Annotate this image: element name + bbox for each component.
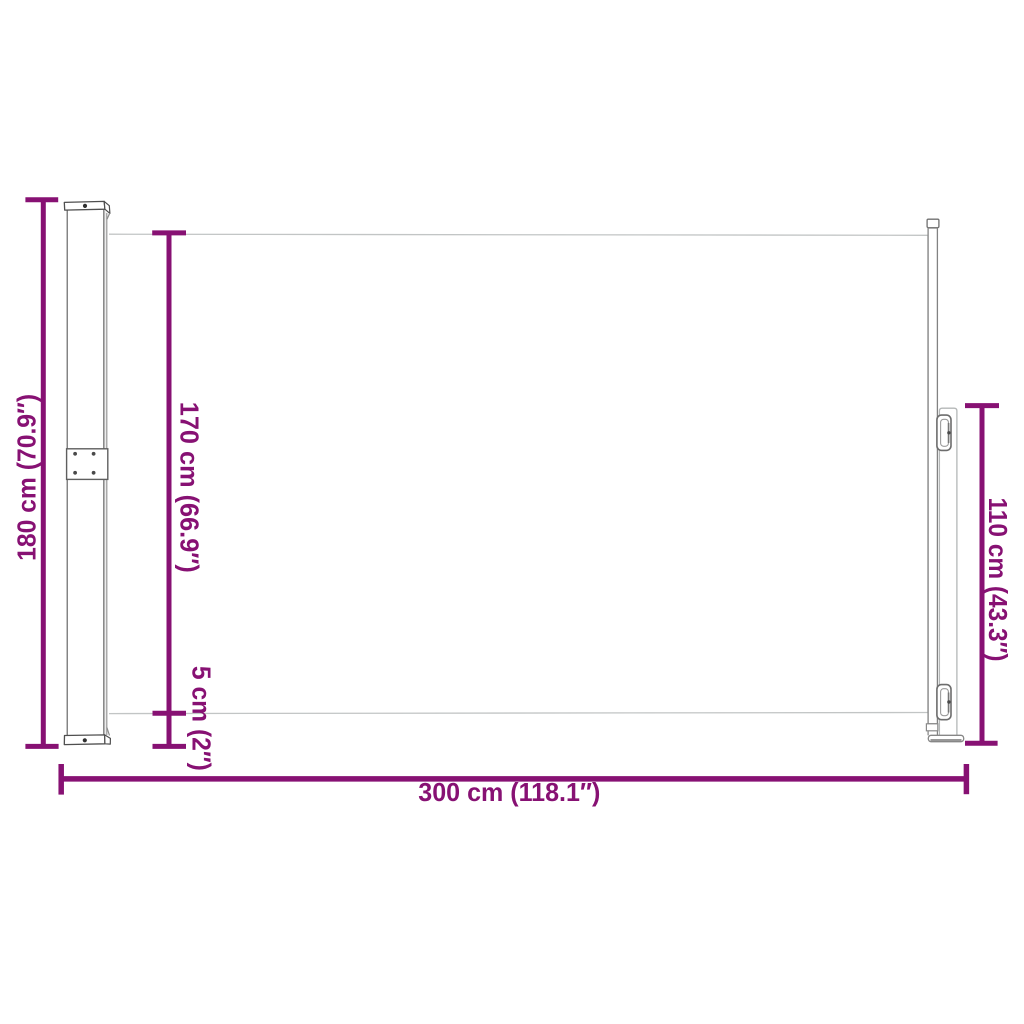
svg-text:5 cm (2″): 5 cm (2″) bbox=[187, 666, 217, 771]
svg-text:300 cm (118.1″): 300 cm (118.1″) bbox=[418, 777, 600, 807]
svg-text:180 cm (70.9″): 180 cm (70.9″) bbox=[11, 394, 41, 561]
svg-text:170 cm (66.9″): 170 cm (66.9″) bbox=[175, 402, 205, 573]
svg-text:110 cm (43.3″): 110 cm (43.3″) bbox=[983, 498, 1013, 662]
